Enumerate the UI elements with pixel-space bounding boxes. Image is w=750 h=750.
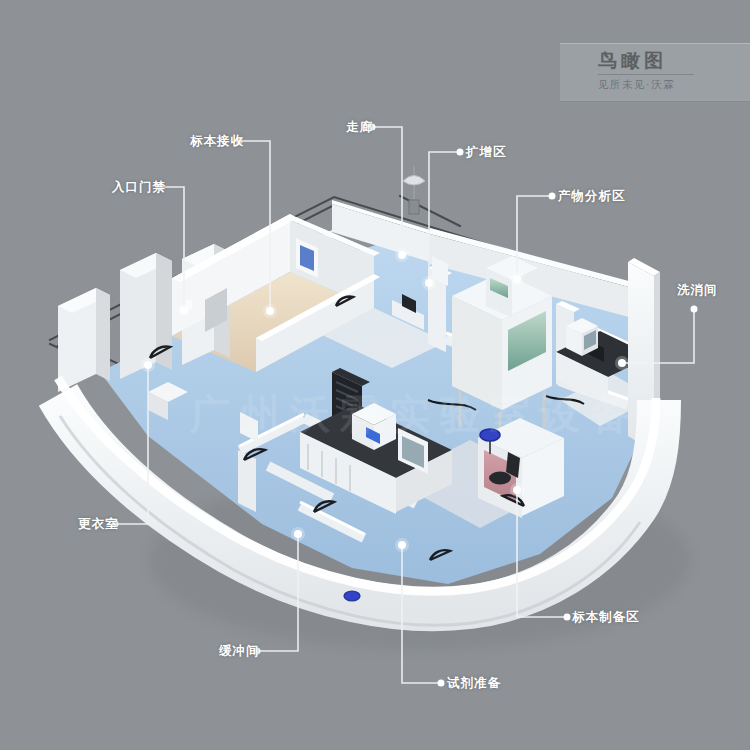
label-buffer-room: 缓冲间 [219,644,260,659]
title-block: 鸟瞰图 见所未见·沃霖 [560,43,750,102]
birdseye-view-canvas: 广州沃霖实验室设备 标本接收 入口门禁 走廊 扩增区 产物分析区 洗消间 更衣室… [0,0,750,750]
pass-box-right [566,318,598,356]
lab-stool-blue-2 [344,591,360,601]
watermark-text: 广州沃霖实验室设备 [189,392,640,436]
page-subtitle: 见所未见·沃霖 [598,78,750,92]
page-title: 鸟瞰图 [598,50,750,72]
title-divider [598,74,694,75]
label-reagent-preparation: 试剂准备 [447,676,501,691]
scene-svg: 广州沃霖实验室设备 [0,0,750,750]
label-amplification-area: 扩增区 [466,145,507,160]
label-product-analysis-area: 产物分析区 [558,189,626,204]
label-washing-room: 洗消间 [677,283,718,298]
label-corridor: 走廊 [346,120,373,135]
label-specimen-receiving: 标本接收 [190,134,244,149]
label-changing-room: 更衣室 [78,517,119,532]
label-entrance-access-control: 入口门禁 [112,180,166,195]
label-specimen-preparation-area: 标本制备区 [572,610,640,625]
